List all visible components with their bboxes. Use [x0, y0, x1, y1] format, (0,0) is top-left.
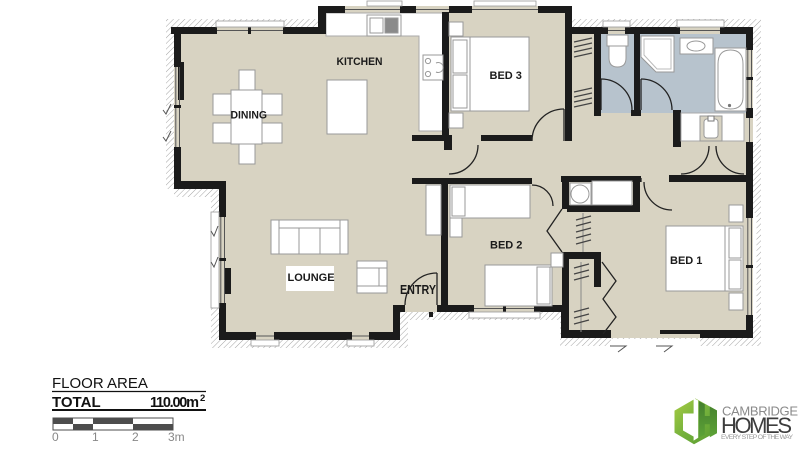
svg-text:2: 2	[132, 430, 139, 444]
svg-text:3m: 3m	[168, 430, 185, 444]
svg-text:TOTAL: TOTAL	[52, 394, 101, 411]
svg-text:BED 3: BED 3	[490, 70, 522, 82]
svg-text:1: 1	[92, 430, 99, 444]
svg-text:ENTRY: ENTRY	[400, 283, 437, 297]
svg-text:EVERY STEP OF THE WAY: EVERY STEP OF THE WAY	[721, 434, 793, 441]
svg-text:110.00m: 110.00m	[150, 395, 199, 411]
svg-text:DINING: DINING	[231, 110, 268, 122]
svg-text:BED 2: BED 2	[490, 240, 522, 252]
svg-text:LOUNGE: LOUNGE	[288, 272, 335, 284]
svg-text:KITCHEN: KITCHEN	[337, 56, 383, 68]
svg-text:FLOOR AREA: FLOOR AREA	[52, 375, 148, 392]
svg-text:BED 1: BED 1	[670, 255, 702, 267]
svg-text:0: 0	[52, 430, 59, 444]
svg-text:2: 2	[200, 393, 205, 404]
